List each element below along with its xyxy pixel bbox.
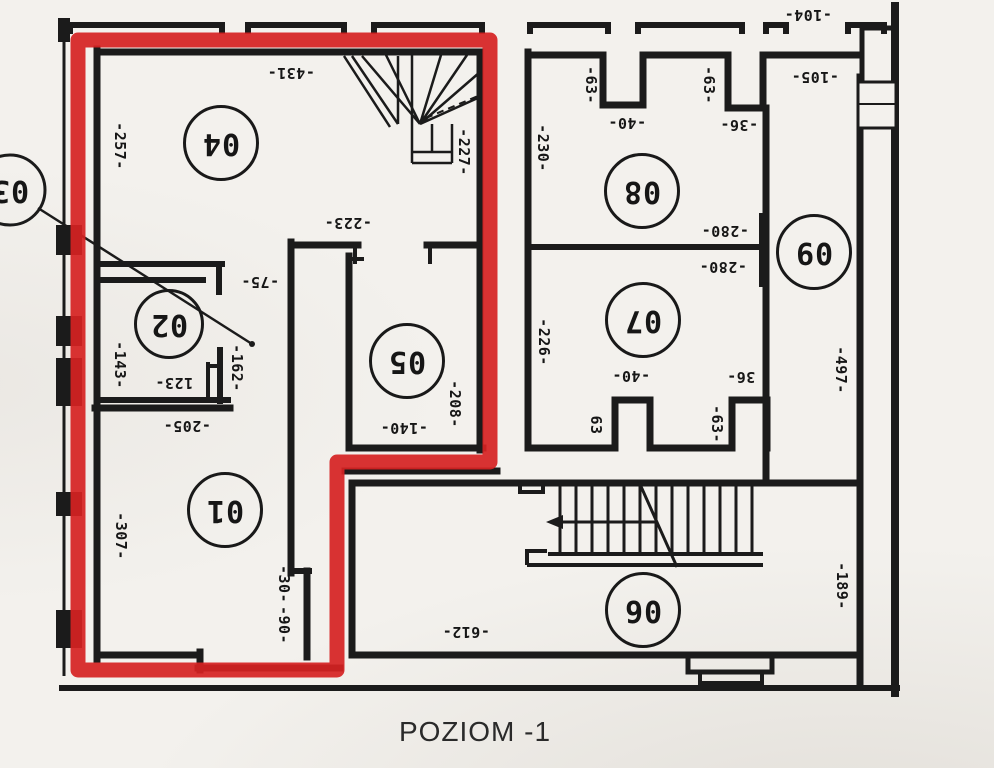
- dim-497: -497-: [832, 346, 850, 394]
- dim-104: -104-: [784, 6, 832, 24]
- entrance-steps: [688, 655, 772, 683]
- dim-162: -162-: [228, 344, 246, 392]
- dim-105: -105-: [791, 68, 839, 86]
- main-staircase: [527, 482, 763, 567]
- dim-257: -257-: [111, 122, 129, 170]
- room-number-07: 07: [605, 282, 681, 358]
- room-number-09: 09: [776, 214, 852, 290]
- stair-direction-arrow-icon: [546, 515, 563, 529]
- dim-143: -143-: [111, 341, 129, 389]
- room-number-05: 05: [369, 323, 445, 399]
- room-number-02: 02: [134, 289, 204, 359]
- dim-123: 123-: [155, 374, 193, 392]
- dim-63-bottom-left: 63: [587, 415, 605, 434]
- dim-227: -227-: [455, 128, 473, 176]
- dim-189: -189-: [833, 562, 851, 610]
- dim-205: -205-: [163, 417, 211, 435]
- level-caption: POZIOM -1: [399, 716, 551, 748]
- room-number-01: 01: [187, 472, 263, 548]
- room-number-08: 08: [604, 153, 680, 229]
- dim-63-top-right: -63-: [700, 66, 718, 104]
- dim-140: -140-: [380, 419, 428, 437]
- dim-208: -208-: [446, 380, 464, 428]
- floorplan-scan: 01 02 03 04 05 06 07 08 09 -431- -257- -…: [0, 0, 994, 768]
- dim-75: -75-: [241, 273, 279, 291]
- dim-90: -90-: [275, 606, 293, 644]
- dim-36-bottom: 36-: [727, 368, 756, 386]
- dim-36-top: -36-: [720, 116, 758, 134]
- dim-280-upper: -280-: [701, 222, 749, 240]
- dim-431: -431-: [267, 64, 315, 82]
- dim-63-bottom-right: -63-: [708, 405, 726, 443]
- dim-280-lower: -280-: [699, 258, 747, 276]
- dim-30: -30-: [275, 565, 293, 603]
- dim-226: -226-: [535, 318, 553, 366]
- room-number-06: 06: [605, 572, 681, 648]
- dim-63-top-left: -63-: [582, 66, 600, 104]
- dim-230: -230-: [534, 124, 552, 172]
- dim-307: -307-: [112, 512, 130, 560]
- dim-223: -223-: [324, 214, 372, 232]
- dim-612: -612-: [442, 623, 490, 641]
- dim-40-bottom: -40-: [612, 367, 650, 385]
- room-number-04: 04: [183, 105, 259, 181]
- dim-40-top: -40-: [608, 114, 646, 132]
